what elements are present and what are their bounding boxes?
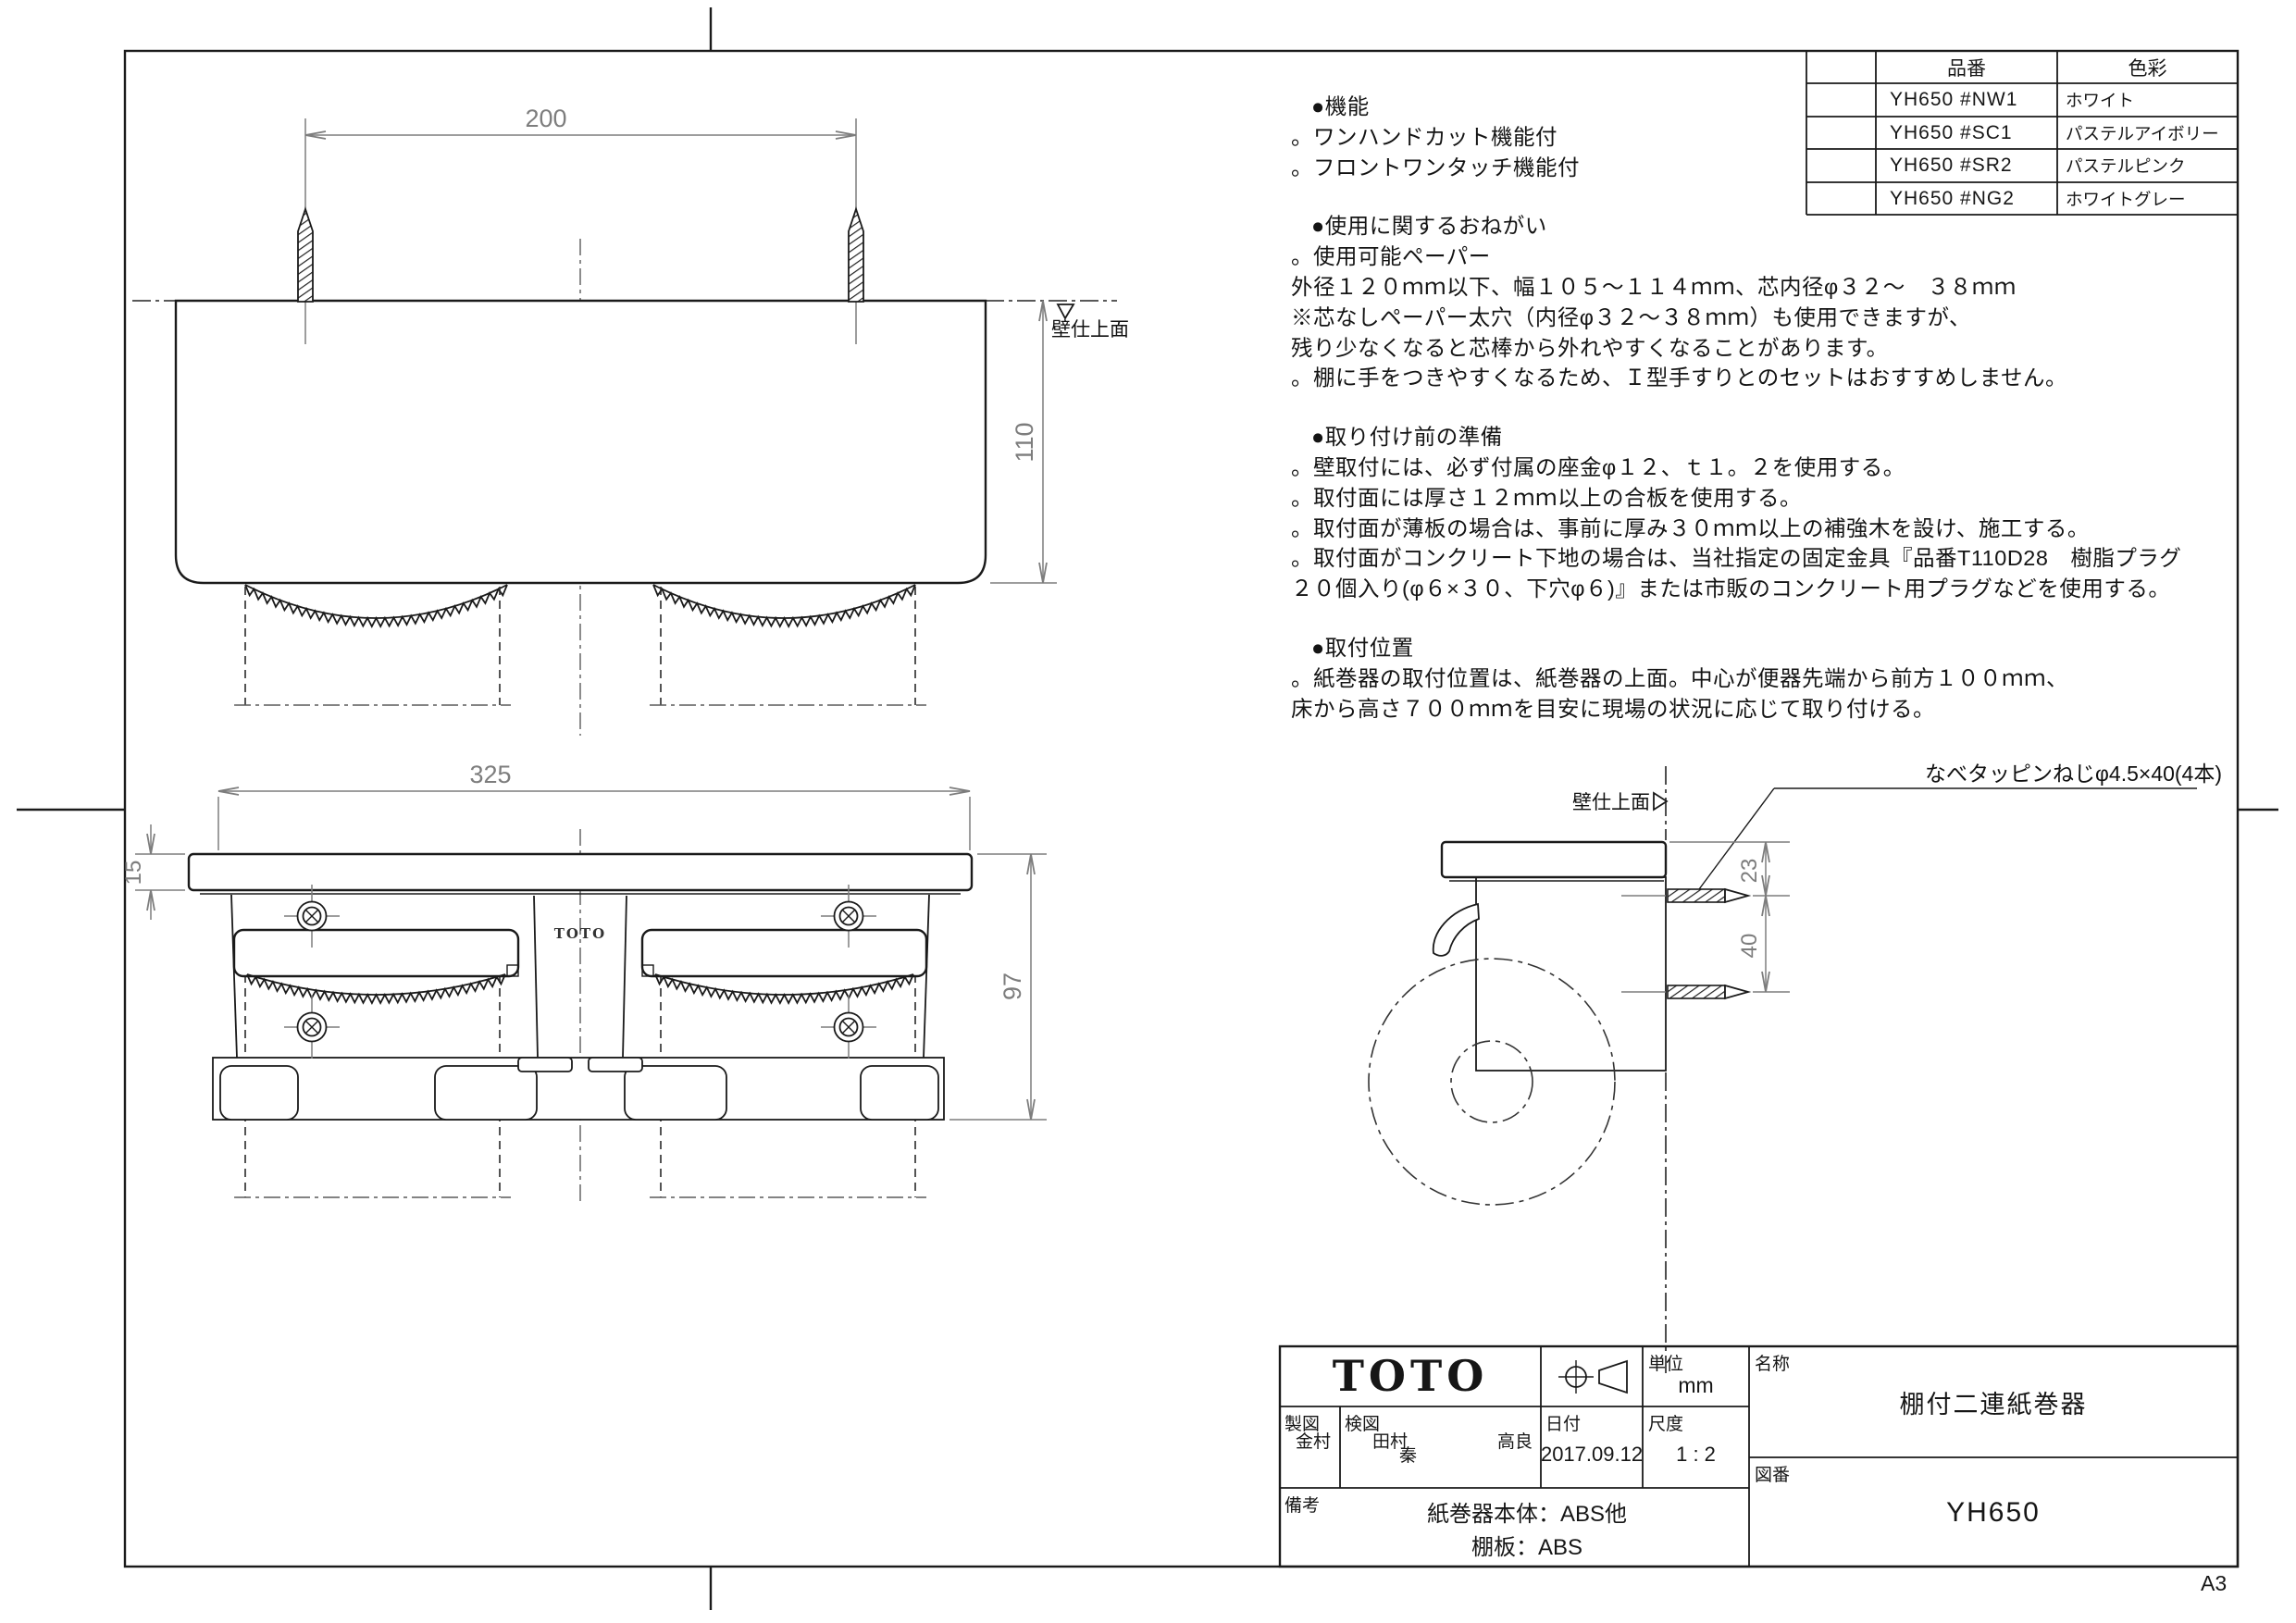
dim-40: 40 (1737, 934, 1762, 959)
note-line: 。取付面がコンクリート下地の場合は、当社指定の固定金具『品番T110D28 樹脂… (1291, 543, 2235, 574)
part-color: パステルピンク (2066, 149, 2236, 182)
dim-325: 325 (469, 761, 511, 788)
note-title: ●取り付け前の準備 (1291, 422, 2235, 452)
part-code: YH650 #SR2 (1890, 149, 2056, 182)
note-section-usage: ●使用に関するおねがい 。使用可能ペーパー 外径１２０ｍｍ以下、幅１０５～１１４… (1291, 211, 2235, 393)
checker-label: 検図 (1345, 1410, 1380, 1435)
date-value: 2017.09.12 (1541, 1440, 1643, 1469)
note-line: ２０個入り(φ６×３０、下穴φ６)』または市販のコンクリート用プラグなどを使用す… (1291, 574, 2235, 604)
note-line: 。紙巻器の取付位置は、紙巻器の上面。中心が便器先端から前方１００ｍｍ、 (1291, 663, 2235, 694)
dim-110: 110 (1011, 422, 1038, 462)
wall-finish-marker-icon (1654, 793, 1667, 810)
scale-value: 1 : 2 (1643, 1440, 1749, 1469)
scale-label: 尺度 (1648, 1410, 1683, 1435)
drafter-name: 金村 (1296, 1432, 1318, 1453)
unit-value: mm (1643, 1370, 1749, 1400)
front-logo: TOTO (554, 925, 606, 942)
wall-finish-marker-icon (1058, 304, 1074, 318)
part-code: YH650 #NG2 (1890, 182, 2056, 215)
part-code: YH650 #SC1 (1890, 117, 2056, 149)
checker-name: 田村 (1372, 1432, 1395, 1453)
note-line: 。取付面が薄板の場合は、事前に厚み３０ｍｍ以上の補強木を設け、施工する。 (1291, 514, 2235, 544)
note-title: ●取付位置 (1291, 633, 2235, 663)
dim-200: 200 (525, 105, 566, 132)
name-label: 名称 (1755, 1350, 1790, 1375)
wall-finish-label-top: 壁仕上面 (1051, 319, 1129, 341)
date-label: 日付 (1545, 1410, 1581, 1435)
remarks-line: 棚板：ABS (1323, 1529, 1731, 1560)
dim-97: 97 (999, 973, 1026, 1000)
side-view: 壁仕上面 なべタッピンねじφ4.5×40(4本) 23 40 (1369, 762, 2222, 1373)
screw-head-icon (284, 996, 340, 1059)
checker-name: 秦 (1399, 1442, 1417, 1467)
note-section-position: ●取付位置 。紙巻器の取付位置は、紙巻器の上面。中心が便器先端から前方１００ｍｍ… (1291, 633, 2235, 724)
note-line: 床から高さ７００ｍｍを目安に現場の状況に応じて取り付ける。 (1291, 694, 2235, 725)
dim-15: 15 (121, 861, 146, 886)
part-color: ホワイト (2066, 83, 2236, 117)
dim-23: 23 (1737, 859, 1762, 884)
part-color: ホワイトグレー (2066, 182, 2236, 215)
projection-symbol-icon (1558, 1360, 1627, 1394)
number-label: 図番 (1755, 1461, 1790, 1486)
note-section-preparation: ●取り付け前の準備 。壁取付には、必ず付属の座金φ１２、ｔ１。２を使用する。 。… (1291, 422, 2235, 604)
note-line: 。棚に手をつきやすくなるため、Ｉ型手すりとのセットはおすすめしません。 (1291, 363, 2235, 393)
remarks-line: 紙巻器本体：ABS他 (1323, 1495, 1731, 1527)
checker-name: 高良 (1497, 1432, 1520, 1453)
parts-table-header-color: 色彩 (2057, 52, 2238, 83)
parts-table-header-code: 品番 (1876, 52, 2057, 83)
part-code: YH650 #NW1 (1890, 83, 2056, 117)
note-line: 。壁取付には、必ず付属の座金φ１２、ｔ１。２を使用する。 (1291, 452, 2235, 483)
toto-logo: TOTO (1280, 1346, 1541, 1405)
paper-size-label: A3 (2201, 1571, 2227, 1596)
wall-finish-label-side: 壁仕上面 (1572, 792, 1650, 813)
part-color: パステルアイボリー (2066, 117, 2236, 149)
note-line: 残り少なくなると芯棒から外れやすくなることがあります。 (1291, 333, 2235, 364)
drafter-label: 製図 (1285, 1410, 1320, 1435)
drawing-sheet: 200 110 壁仕上面 (0, 0, 2296, 1623)
drawing-number: YH650 (1749, 1493, 2238, 1532)
note-line: 。使用可能ペーパー (1291, 242, 2235, 272)
note-line: 外径１２０ｍｍ以下、幅１０５～１１４ｍｍ、芯内径φ３２～ ３８ｍｍ (1291, 272, 2235, 303)
screw-note-label: なべタッピンねじφ4.5×40(4本) (1925, 762, 2222, 786)
product-name: 棚付二連紙巻器 (1749, 1384, 2238, 1419)
top-view: 200 110 壁仕上面 (132, 105, 1129, 736)
remarks-label: 備考 (1285, 1492, 1320, 1517)
note-title: ●使用に関するおねがい (1291, 211, 2235, 242)
note-line: ※芯なしペーパー太穴（内径φ３２～３８ｍｍ）も使用できますが、 (1291, 303, 2235, 333)
screw-head-icon (821, 996, 876, 1059)
front-view: TOTO 325 15 97 (121, 761, 1047, 1201)
note-line: 。取付面には厚さ１２ｍｍ以上の合板を使用する。 (1291, 483, 2235, 514)
